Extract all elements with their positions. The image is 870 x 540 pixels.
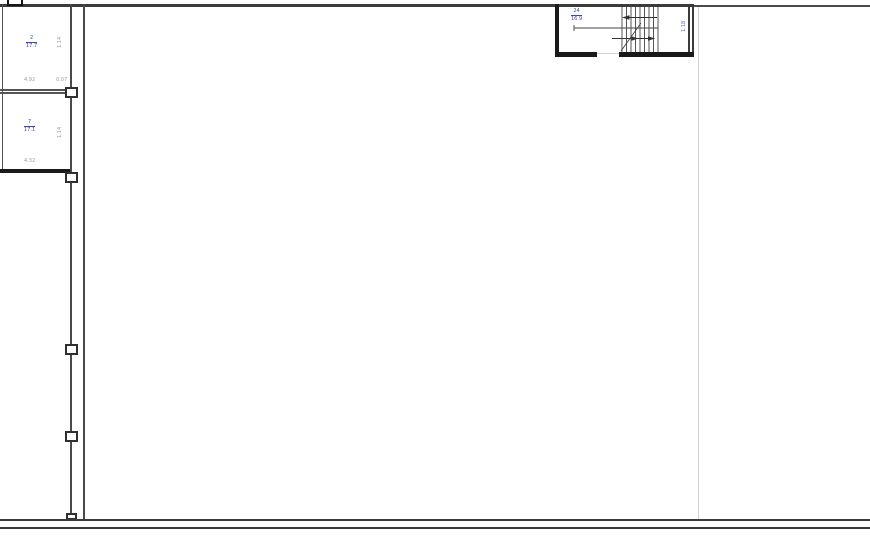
- wall-top-right-segment: [694, 5, 870, 7]
- wall-column-line-right: [83, 4, 85, 520]
- stair-room-area: 16.9: [571, 17, 582, 22]
- room-a-area: 17.7: [26, 44, 37, 49]
- stair-handrail: [574, 25, 658, 31]
- wall-bottom-inner: [0, 527, 870, 529]
- stair-treads: [622, 7, 658, 52]
- wall-room-divider-upper-line: [0, 89, 70, 91]
- dim-room-b-height: 1.14: [58, 127, 63, 138]
- stair-room-number: 24: [573, 9, 579, 14]
- wall-bottom-outer: [0, 519, 870, 521]
- room-b-tag: 7 17.1: [24, 120, 35, 133]
- wall-room-b-bottom: [0, 169, 70, 173]
- dim-stair-width: 1.18: [682, 21, 687, 32]
- column-pier-4: [65, 431, 78, 442]
- room-b-number: 7: [28, 120, 31, 125]
- room-b-area: 17.1: [24, 128, 35, 133]
- column-pier-1: [65, 87, 78, 98]
- stair-direction-arrow-down: [612, 36, 655, 40]
- wall-column-line-left: [70, 4, 72, 520]
- stair-room-tag: 24 16.9: [571, 9, 582, 22]
- room-a-tag: 2 17.7: [26, 36, 37, 49]
- dim-wall-offset: 0.07: [56, 78, 67, 83]
- room-a-number: 2: [30, 36, 33, 41]
- window-opening-symbol: [7, 0, 23, 6]
- dim-room-a-height: 1.14: [58, 37, 63, 48]
- expansion-joint-line: [698, 7, 699, 519]
- dim-room-a-width: 4.92: [24, 78, 35, 83]
- wall-room-divider-lower-line: [0, 92, 70, 94]
- column-pier-3: [65, 344, 78, 355]
- stair-direction-arrow-up: [622, 15, 657, 19]
- dim-room-b-width: 4.32: [24, 159, 35, 164]
- floor-plan-canvas: 2 17.7 7 17.1 24 16.9 4.92 0.07 1.14 1.1…: [0, 0, 870, 540]
- column-pier-2: [65, 172, 78, 183]
